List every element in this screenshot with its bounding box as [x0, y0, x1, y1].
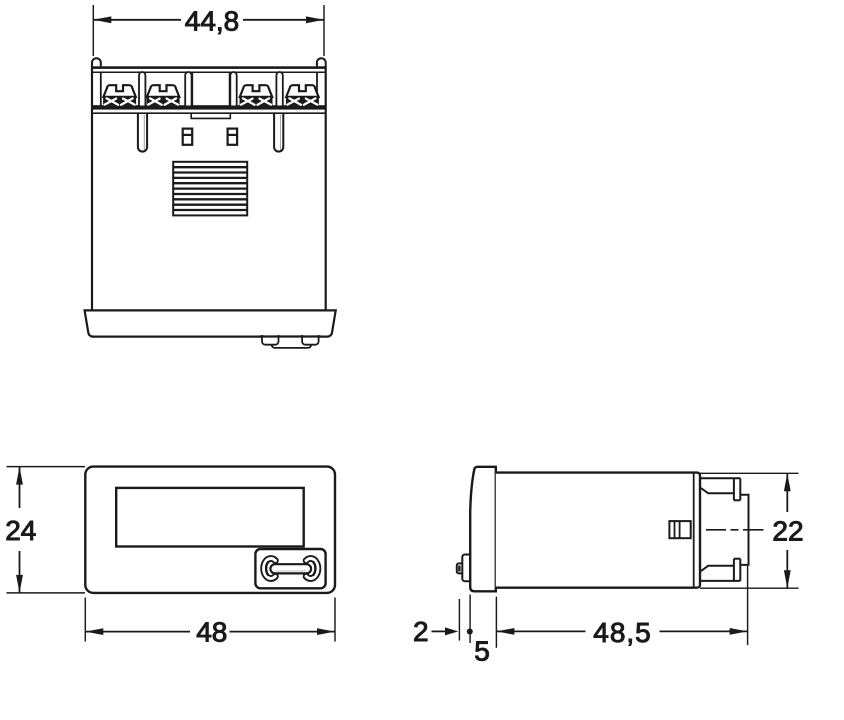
svg-text:48: 48 — [196, 616, 227, 647]
svg-text:22: 22 — [772, 515, 803, 546]
svg-text:5: 5 — [474, 636, 490, 667]
svg-text:2: 2 — [413, 616, 429, 647]
svg-text:48,5: 48,5 — [593, 617, 652, 648]
svg-text:24: 24 — [5, 515, 36, 546]
svg-text:44,8: 44,8 — [185, 5, 240, 36]
